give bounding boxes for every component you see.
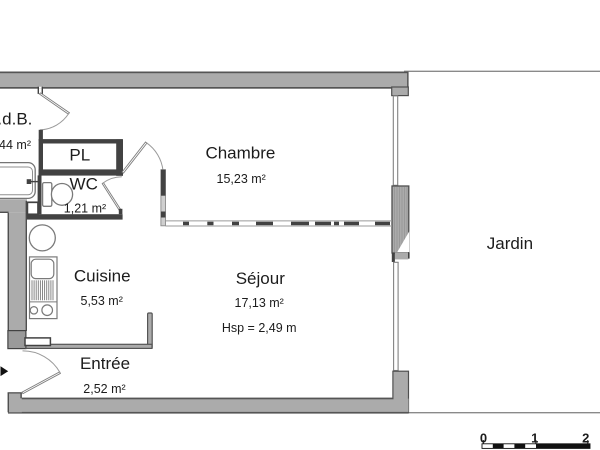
- svg-text:PL: PL: [69, 146, 90, 165]
- svg-text:Hsp = 2,49 m: Hsp = 2,49 m: [222, 321, 297, 335]
- svg-text:17,13 m²: 17,13 m²: [235, 296, 284, 310]
- svg-text:Jardin: Jardin: [487, 234, 533, 253]
- svg-text:Chambre: Chambre: [205, 143, 275, 162]
- svg-text:1: 1: [531, 431, 538, 446]
- svg-text:15,23 m²: 15,23 m²: [217, 172, 266, 186]
- svg-text:2: 2: [582, 431, 589, 446]
- svg-text:5,53 m²: 5,53 m²: [81, 294, 123, 308]
- svg-text:Séjour: Séjour: [236, 269, 285, 288]
- svg-text:S.d.B.: S.d.B.: [0, 109, 32, 128]
- svg-text:3,44 m²: 3,44 m²: [0, 138, 31, 152]
- svg-text:WC: WC: [70, 175, 98, 194]
- svg-text:Entrée: Entrée: [80, 354, 130, 373]
- svg-text:2,52 m²: 2,52 m²: [83, 382, 125, 396]
- svg-text:Cuisine: Cuisine: [74, 266, 131, 285]
- svg-text:0: 0: [480, 431, 487, 446]
- svg-text:1,21 m²: 1,21 m²: [64, 202, 106, 216]
